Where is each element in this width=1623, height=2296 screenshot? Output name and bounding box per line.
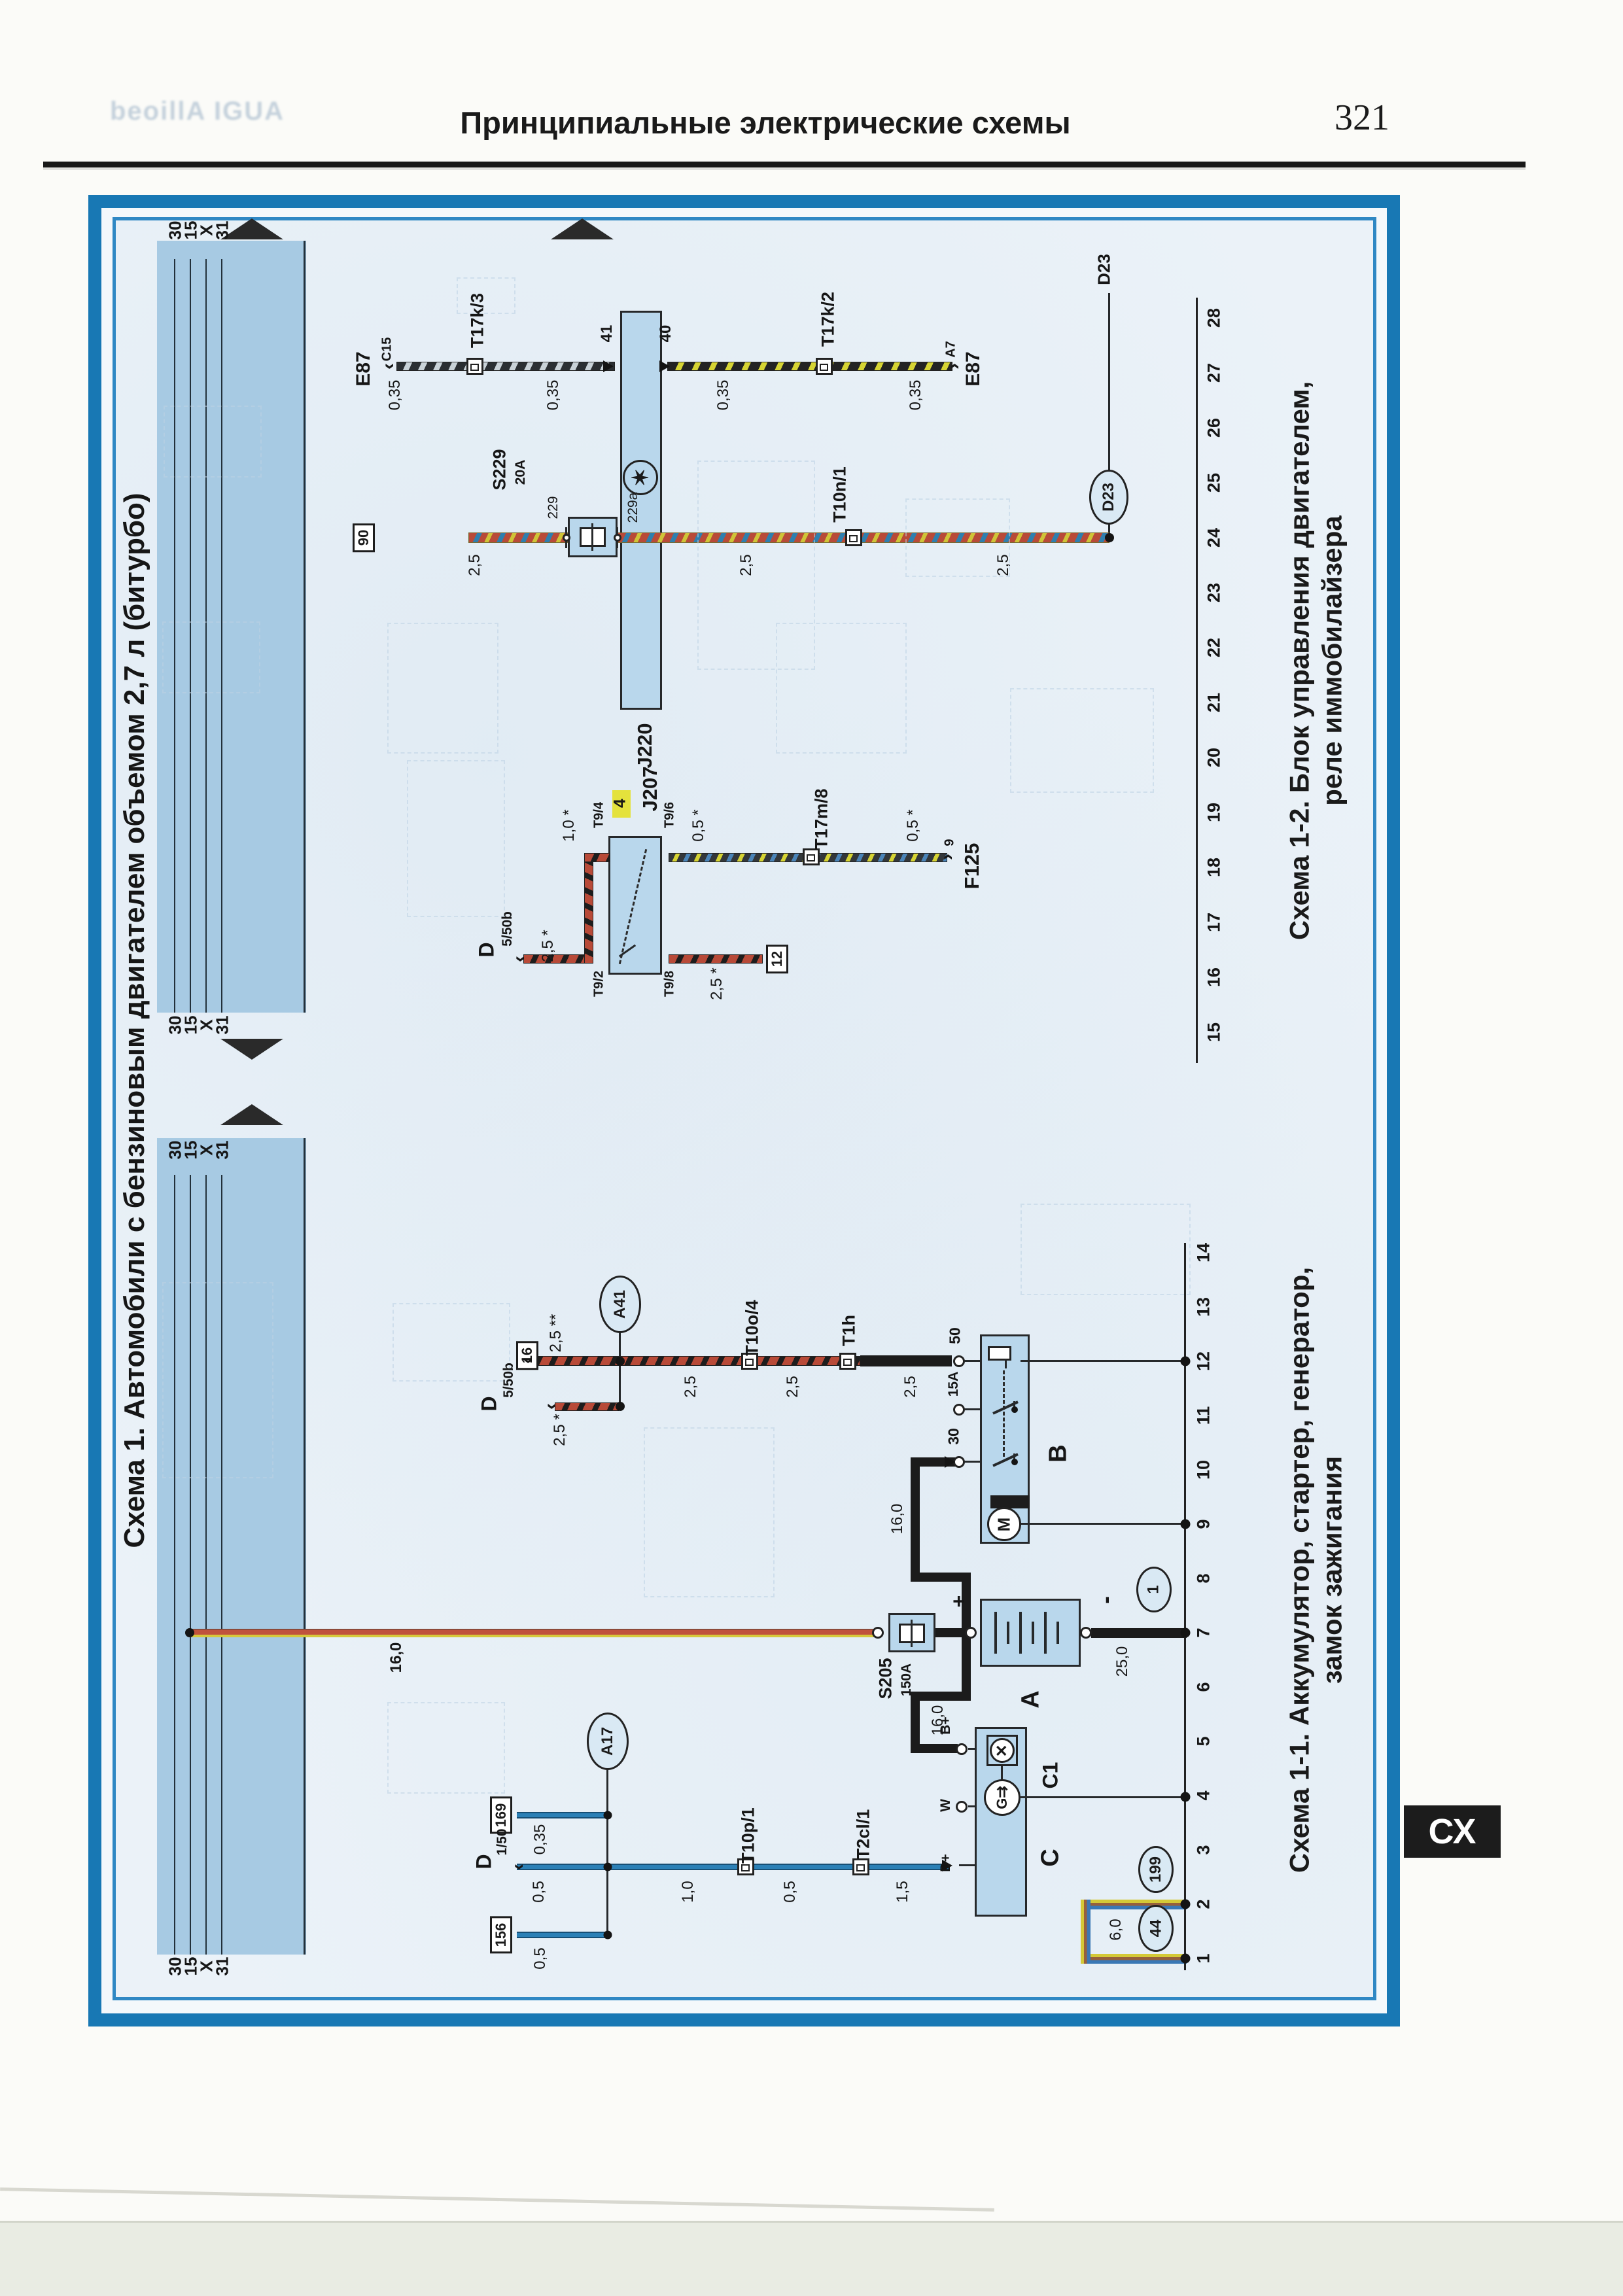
track-number: 11 — [1194, 1406, 1214, 1425]
track-number: 4 — [1194, 1790, 1214, 1800]
generator-symbol-icon: G⇉ — [984, 1779, 1021, 1816]
terminal-pin-icon — [614, 534, 621, 542]
rotated-label: 2,5 * — [551, 1414, 569, 1446]
rotated-label: 5/50b — [501, 1363, 517, 1398]
rotated-label: J220 — [633, 723, 657, 769]
rotated-label: - — [1092, 1596, 1119, 1604]
rotated-label: E87 — [962, 351, 985, 386]
wire-segment — [968, 1748, 975, 1750]
ghost-artifact — [162, 1282, 273, 1478]
wire-segment — [964, 1360, 980, 1362]
wire-segment — [1019, 1612, 1022, 1654]
ghost-artifact — [1010, 688, 1154, 793]
bus-terminal-label: 31 — [213, 1016, 233, 1035]
wire-segment — [468, 532, 568, 543]
caption-line: замок зажигания — [1316, 1267, 1349, 1873]
wire-arrow-icon — [603, 360, 614, 372]
track-number: 23 — [1204, 583, 1225, 602]
rotated-label: 16,0 — [387, 1643, 406, 1673]
rotated-label: 2,5 — [466, 554, 484, 576]
wire-segment — [517, 1932, 608, 1938]
bus-terminal-label: 31 — [213, 1141, 233, 1160]
wire-segment — [911, 1620, 913, 1647]
track-number: 24 — [1204, 528, 1225, 548]
rotated-label: T9/4 — [592, 802, 607, 828]
lamp-cross-icon: ✕ — [992, 1744, 1011, 1757]
wire-segment — [517, 1812, 608, 1818]
ghost-artifact — [162, 621, 260, 693]
wire-segment — [1003, 1370, 1005, 1457]
rotated-label: 40 — [657, 325, 675, 343]
rotated-label: 1,5 — [894, 1881, 912, 1902]
wire-segment — [667, 362, 952, 371]
junction-dot — [1181, 1520, 1191, 1529]
wire-segment — [860, 1355, 952, 1366]
wire-segment — [911, 1457, 920, 1582]
rotated-label: ‹ — [540, 1403, 562, 1410]
bus-band-bottom — [157, 1138, 306, 1955]
wire-segment — [1007, 1622, 1009, 1644]
rotated-label: J207 — [638, 767, 662, 812]
connector-icon — [816, 358, 833, 375]
wire-arrow-icon — [945, 1456, 955, 1468]
wire-segment — [517, 1864, 949, 1870]
wire-segment — [591, 523, 593, 551]
rotated-label: 2,5 ** — [547, 1314, 565, 1353]
ghost-artifact — [644, 1427, 775, 1597]
rotated-label: 0,5 — [531, 1947, 550, 1969]
wire-segment — [1081, 1954, 1187, 1964]
wire-segment — [1044, 1612, 1047, 1654]
junction-dot — [1181, 1357, 1191, 1366]
rotated-label: W — [938, 1799, 954, 1812]
wire-segment — [619, 1328, 621, 1408]
wire-segment — [396, 362, 615, 371]
ref-circle-label: 199 — [1147, 1856, 1165, 1883]
solenoid-box — [988, 1346, 1011, 1361]
ref-circle: 44 — [1138, 1905, 1174, 1952]
junction-dot — [1181, 1900, 1191, 1909]
rotated-label: D — [475, 942, 499, 957]
terminal-pin-icon — [872, 1627, 884, 1639]
junction-dot — [616, 1357, 625, 1366]
ref-circle: A17 — [587, 1713, 629, 1770]
rotated-label: T9/8 — [663, 971, 678, 997]
track-number: 7 — [1194, 1627, 1214, 1637]
track-number: 20 — [1204, 748, 1225, 767]
star-icon: ✶ — [627, 468, 654, 487]
rotated-label: 0,35 — [531, 1824, 550, 1855]
scanned-page: beoillA IGUA Принципиальные электрически… — [0, 0, 1623, 2296]
rotated-label: S229 — [490, 449, 510, 490]
bus-terminal-label: 31 — [213, 221, 233, 240]
rotated-label: 2,5 — [682, 1376, 700, 1397]
rotated-label: 20A — [513, 460, 529, 485]
terminal-pin-icon — [1080, 1627, 1092, 1639]
rotated-label: 2,5 — [994, 554, 1013, 576]
ref-circle: 1 — [1136, 1567, 1172, 1612]
ref-circle-label: D23 — [1100, 483, 1118, 512]
rotated-label: 2,5 — [784, 1376, 802, 1397]
rotated-label: ‹ — [377, 363, 400, 370]
rotated-label: 2,5 * — [539, 930, 557, 962]
rotated-label: 150A — [899, 1663, 915, 1696]
wire-segment — [1032, 1622, 1034, 1644]
wire-segment — [669, 954, 763, 964]
rotated-label: 0,5 — [530, 1881, 548, 1902]
diagram-canvas: Схема 1. Автомобили с бензиновым двигате… — [0, 0, 1623, 2296]
ref-circle-label: A41 — [611, 1290, 629, 1319]
junction-dot — [185, 1628, 194, 1637]
warning-lamp-icon: ✕ — [990, 1738, 1015, 1763]
track-number: 9 — [1194, 1519, 1214, 1529]
rotated-label: T9/2 — [592, 971, 607, 997]
wire-segment — [304, 1138, 305, 1955]
rotated-label: 229a — [625, 493, 641, 523]
track-number: 17 — [1204, 913, 1225, 932]
wire-segment — [964, 1461, 980, 1463]
rotated-label: 50 — [947, 1327, 964, 1344]
junction-dot — [616, 1402, 625, 1411]
rotated-label: 2,5 — [737, 554, 756, 576]
wire-segment — [1001, 1766, 1003, 1781]
terminal-pin-icon — [965, 1627, 977, 1639]
rotated-label: B+ — [938, 1716, 954, 1734]
terminal-pin-icon — [956, 1743, 968, 1755]
rotated-label: D+ — [938, 1854, 954, 1871]
wire-segment — [1081, 1900, 1187, 1909]
junction-dot — [604, 1811, 612, 1820]
track-number: 27 — [1204, 363, 1225, 383]
continuation-arrow-icon — [220, 1039, 283, 1060]
ghost-artifact — [387, 623, 498, 754]
wire-segment — [584, 853, 610, 862]
rotated-label: F125 — [960, 843, 984, 890]
connector-icon — [803, 848, 820, 865]
ghost-artifact — [776, 623, 907, 754]
connector-icon — [845, 529, 862, 546]
rotated-label: 1,0 * — [560, 809, 578, 841]
wire-segment — [1081, 1900, 1091, 1964]
rotated-label: 4 — [611, 799, 630, 808]
rotated-label: T1h — [839, 1315, 860, 1346]
track-number: 22 — [1204, 638, 1225, 657]
rotated-label: 9 — [943, 839, 958, 846]
rotated-label: › — [943, 363, 965, 370]
rotated-label: T2cl/1 — [854, 1809, 874, 1860]
ghost-artifact — [164, 406, 262, 478]
terminal-pin-icon — [953, 1404, 965, 1416]
ref-circle: D23 — [1089, 470, 1128, 525]
boxed-label: 156 — [490, 1917, 512, 1954]
connector-icon — [852, 1858, 869, 1875]
terminal-pin-icon — [953, 1355, 965, 1367]
track-number: 8 — [1194, 1573, 1214, 1583]
rotated-label: 2,5 * — [708, 967, 726, 1000]
rotated-label: 1,0 — [679, 1881, 697, 1902]
track-number: 18 — [1204, 858, 1225, 877]
connector-icon — [839, 1353, 856, 1370]
rotated-label: A — [1017, 1690, 1045, 1708]
track-number: 16 — [1204, 967, 1225, 987]
track-number: 13 — [1194, 1297, 1214, 1317]
rotated-label: 0,35 — [714, 380, 733, 411]
rotated-label: T9/6 — [663, 802, 678, 828]
rotated-label: 16,0 — [888, 1504, 907, 1535]
ref-circle-label: A17 — [599, 1727, 617, 1756]
track-number: 5 — [1194, 1736, 1214, 1746]
generator-g-label: G⇉ — [994, 1786, 1011, 1809]
boxed-label: 12 — [766, 945, 788, 973]
rotated-label: 30 — [945, 1428, 963, 1445]
track-number: 1 — [1194, 1953, 1214, 1963]
rotated-label: T10o/4 — [742, 1300, 763, 1356]
track-number: 15 — [1204, 1022, 1225, 1042]
rotated-label: E87 — [353, 351, 375, 386]
caption-line: реле иммобилайзера — [1316, 381, 1349, 940]
wire-segment — [911, 1744, 958, 1753]
track-number: 28 — [1204, 308, 1225, 328]
wire-segment — [1056, 1622, 1059, 1644]
wire-segment — [555, 1402, 619, 1411]
rotated-label: D23 — [1094, 254, 1115, 285]
wire-segment — [1029, 1523, 1185, 1525]
ref-circle-label: 44 — [1147, 1920, 1165, 1938]
wire-segment — [1184, 1243, 1186, 1970]
track-number: 14 — [1194, 1243, 1214, 1262]
wire-segment — [964, 1408, 980, 1410]
track-number: 12 — [1194, 1351, 1214, 1371]
schema-1-2-caption: Схема 1-2. Блок управления двигателем, р… — [1283, 381, 1350, 940]
rotated-label: T10n/1 — [830, 466, 850, 523]
track-number: 25 — [1204, 473, 1225, 493]
wire-segment — [1091, 1628, 1187, 1638]
wire-segment — [527, 1356, 860, 1366]
relay-symbol-icon: ✶ — [623, 460, 658, 495]
rotated-label: 229 — [546, 496, 561, 519]
rotated-label: 2,5 — [901, 1376, 920, 1397]
rotated-label: 6,0 — [1107, 1919, 1125, 1940]
rotated-label: T17k/2 — [818, 292, 839, 347]
connector-icon — [466, 358, 483, 375]
wire-segment — [1005, 1359, 1007, 1368]
rotated-label: 25,0 — [1113, 1646, 1132, 1677]
ref-circle: A41 — [599, 1276, 641, 1333]
wire-segment — [968, 1805, 975, 1807]
rotated-label: T10p/1 — [739, 1807, 759, 1864]
junction-dot — [604, 1931, 612, 1939]
rotated-label: ‹ — [508, 956, 531, 962]
rotated-label: + — [947, 1595, 971, 1608]
rotated-label: C15 — [380, 338, 395, 362]
ref-circle: 199 — [1138, 1846, 1174, 1893]
rotated-label: 0,35 — [907, 380, 925, 411]
wire-segment — [994, 1612, 997, 1654]
terminal-pin-icon — [956, 1801, 968, 1813]
junction-dot — [1105, 533, 1114, 542]
junction-dot — [1181, 1792, 1191, 1802]
rotated-label: S205 — [876, 1658, 896, 1699]
schema-1-1-caption: Схема 1-1. Аккумулятор, стартер, генерат… — [1283, 1267, 1350, 1873]
rotated-label: › — [936, 854, 958, 860]
terminal-pin-icon — [563, 534, 570, 542]
track-number: 10 — [1194, 1460, 1214, 1480]
junction-dot — [604, 1863, 612, 1871]
boxed-label: 90 — [353, 523, 375, 552]
relay-j207-box — [608, 836, 662, 975]
junction-dot — [1011, 1406, 1018, 1413]
junction-dot — [1181, 1954, 1191, 1964]
wire-segment — [1196, 298, 1198, 1063]
continuation-arrow-icon — [220, 1104, 283, 1125]
motor-symbol-icon: M — [987, 1507, 1021, 1541]
rotated-label: 1/50 — [495, 1829, 510, 1856]
junction-dot — [1181, 1628, 1191, 1638]
section-tab-cx: СХ — [1404, 1805, 1501, 1858]
rotated-label: 5/50b — [500, 911, 515, 947]
rotated-label: 0,35 — [386, 380, 404, 411]
wire-segment — [304, 241, 305, 1013]
rotated-label: C — [1037, 1849, 1065, 1866]
boxed-label: 16 — [516, 1341, 538, 1370]
wire-segment — [1021, 1796, 1185, 1798]
ghost-artifact — [1021, 1204, 1191, 1295]
track-number: 21 — [1204, 693, 1225, 712]
track-number: 2 — [1194, 1899, 1214, 1909]
rotated-label: A7 — [944, 341, 959, 358]
junction-dot — [1011, 1459, 1018, 1465]
scan-background-band — [0, 2221, 1623, 2296]
rotated-label: 0,35 — [544, 380, 563, 411]
resistor-block — [990, 1495, 1030, 1508]
continuation-arrow-icon — [551, 218, 614, 239]
rotated-label: 0,5 * — [689, 809, 708, 841]
wire-segment — [1021, 1360, 1185, 1362]
caption-line: Схема 1-1. Аккумулятор, стартер, генерат… — [1283, 1267, 1316, 1873]
rotated-label: C1 — [1039, 1762, 1063, 1789]
rotated-label: ‹ — [507, 1864, 529, 1870]
rotated-label: 15A — [946, 1372, 962, 1397]
rotated-label: 0,5 * — [904, 809, 922, 841]
schema-1-title: Схема 1. Автомобили с бензиновым двигате… — [118, 493, 151, 1548]
rotated-label: ‹ — [516, 1357, 538, 1364]
rotated-label: T17k/3 — [468, 293, 488, 348]
wire-segment — [584, 857, 593, 964]
ghost-artifact — [393, 1303, 510, 1382]
rotated-label: 0,5 — [781, 1881, 799, 1902]
track-number: 26 — [1204, 418, 1225, 438]
wire-segment — [606, 1766, 608, 1936]
ghost-artifact — [387, 1702, 505, 1794]
caption-line: Схема 1-2. Блок управления двигателем, — [1283, 381, 1316, 940]
track-number: 19 — [1204, 803, 1225, 822]
ref-circle-label: 1 — [1145, 1585, 1163, 1593]
track-number: 3 — [1194, 1845, 1214, 1854]
wire-segment — [618, 532, 1109, 543]
wire-arrow-icon — [659, 360, 670, 372]
rotated-label: 41 — [598, 325, 616, 343]
ghost-artifact — [407, 760, 505, 917]
wire-segment — [190, 1629, 874, 1637]
bus-terminal-label: 31 — [213, 1957, 233, 1976]
rotated-label: B — [1045, 1444, 1073, 1462]
track-number: 6 — [1194, 1682, 1214, 1692]
motor-m-label: M — [994, 1517, 1014, 1531]
rotated-label: D — [472, 1854, 497, 1869]
rotated-label: D — [478, 1396, 502, 1411]
rotated-label: T17m/8 — [812, 788, 832, 849]
wire-segment — [959, 1864, 976, 1866]
